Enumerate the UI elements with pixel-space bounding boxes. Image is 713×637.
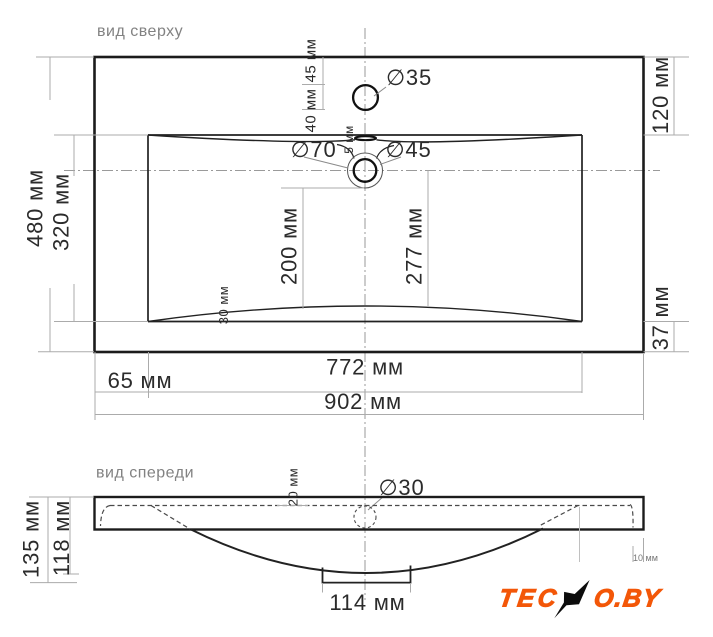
svg-text:114 мм: 114 мм [329, 590, 405, 615]
svg-text:200 мм: 200 мм [277, 207, 302, 285]
svg-text:∅45: ∅45 [385, 137, 431, 162]
svg-text:10 мм: 10 мм [633, 553, 658, 563]
svg-text:∅35: ∅35 [386, 65, 432, 90]
svg-text:320 мм: 320 мм [49, 173, 74, 251]
svg-text:TEC: TEC [497, 585, 561, 613]
svg-text:∅70: ∅70 [290, 137, 336, 162]
svg-text:480 мм: 480 мм [23, 169, 48, 247]
svg-text:37 мм: 37 мм [648, 286, 673, 351]
svg-text:118 мм: 118 мм [49, 500, 74, 576]
svg-text:∅30: ∅30 [378, 475, 424, 500]
svg-text:40 мм: 40 мм [303, 89, 320, 133]
svg-text:772 мм: 772 мм [326, 355, 404, 380]
svg-text:902 мм: 902 мм [324, 389, 402, 414]
svg-text:5 мм: 5 мм [342, 125, 356, 154]
svg-text:65 мм: 65 мм [108, 368, 173, 393]
svg-text:30 мм: 30 мм [216, 286, 231, 324]
svg-text:вид спереди: вид спереди [96, 465, 194, 482]
svg-text:277 мм: 277 мм [402, 207, 427, 285]
svg-text:45 мм: 45 мм [303, 39, 320, 83]
svg-text:20 мм: 20 мм [286, 468, 301, 506]
svg-text:135 мм: 135 мм [19, 500, 44, 578]
svg-text:вид сверху: вид сверху [97, 23, 183, 40]
svg-text:120 мм: 120 мм [648, 56, 673, 134]
svg-text:O.BY: O.BY [592, 585, 663, 613]
